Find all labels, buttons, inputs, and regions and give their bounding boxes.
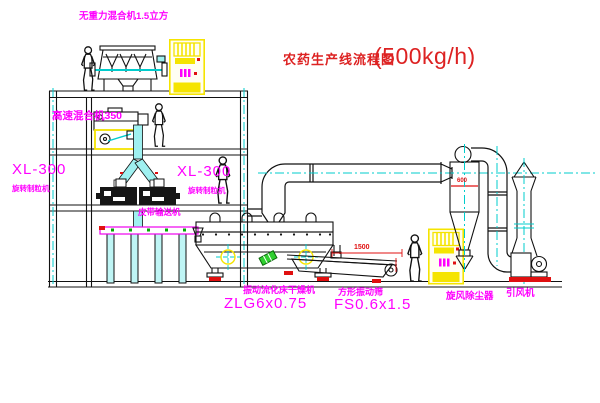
control-cabinet-upper (170, 40, 204, 94)
label-granulator-left-name: 旋转制粒机 (12, 185, 50, 193)
label-gravity-mixer: 无重力混合机1.5立方 (79, 12, 168, 22)
label-cyclone: 旋风除尘器 (446, 292, 494, 302)
gravity-mixer-drawing (90, 46, 167, 91)
label-dryer-model: ZLG6x0.75 (224, 296, 307, 311)
label-granulator-mid-model: XL-300 (177, 164, 231, 179)
sieve-foot-left (284, 271, 293, 275)
diagram-title-capacity: (500kg/h) (374, 45, 476, 68)
cad-flow-diagram: 无重力混合机1.5立方 高速混合机350 XL-300 旋转制粒机 XL-300… (0, 0, 600, 403)
dryer-targets (209, 244, 329, 281)
dimension-cyclone: 600 (457, 178, 467, 184)
label-sieve-model: FS0.6x1.5 (334, 297, 411, 312)
person-figure (408, 235, 422, 281)
sieve-foot-right (372, 279, 381, 283)
person-figure (82, 47, 95, 90)
dimension-sieve-length: 1500 (354, 244, 370, 251)
fluid-bed-dryer-drawing (193, 213, 341, 277)
person-figure (153, 104, 166, 146)
fan-base (509, 277, 551, 282)
label-granulator-mid-name: 旋转制粒机 (188, 187, 226, 195)
label-belt-conveyor: 皮带输送机 (138, 208, 181, 217)
granulators-drawing (96, 172, 180, 205)
belt-conveyor-drawing (99, 226, 198, 283)
label-induced-fan: 引风机 (506, 289, 535, 299)
induced-fan-drawing (511, 253, 547, 277)
label-granulator-left-model: XL-300 (12, 162, 66, 177)
label-dryer-name: 振动流化床干燥机 (243, 286, 315, 295)
vibrating-sieve-drawing (287, 255, 397, 277)
label-high-speed-mixer: 高速混合机350 (52, 111, 122, 122)
